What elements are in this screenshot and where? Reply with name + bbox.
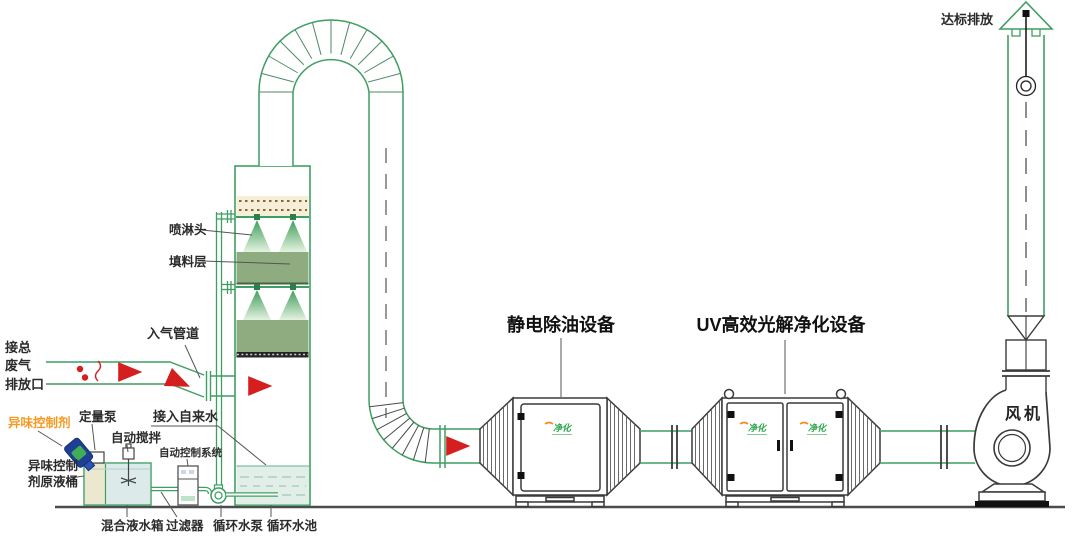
contaminant-marks	[77, 361, 101, 381]
uv-foot	[832, 502, 844, 507]
door-hinge	[518, 472, 525, 479]
fan-base	[979, 492, 1045, 501]
spray-nozzle	[254, 284, 260, 290]
uv-inlet-transition	[692, 398, 722, 495]
esp-door	[521, 404, 600, 491]
label-auto-stir: 自动搅拌	[111, 430, 162, 445]
spray-nozzle	[290, 214, 296, 220]
inlet-duct	[46, 362, 235, 401]
label-mixing-tank: 混合液水箱	[101, 518, 164, 533]
tank-right-section	[106, 464, 151, 504]
fan-base-pad	[975, 501, 1049, 507]
label-esp-unit: 静电除油设备	[507, 314, 616, 335]
label-tap-water: 接入自来水	[153, 409, 219, 424]
label-waste-inlet-2: 废气	[5, 358, 31, 373]
lifting-eye	[725, 390, 734, 399]
uv-foot	[726, 502, 738, 507]
esp-foot	[592, 502, 604, 507]
esp-foot	[516, 502, 528, 507]
fan-hub	[994, 430, 1030, 466]
sampling-port-inner	[1021, 81, 1031, 91]
door-hinge	[836, 474, 843, 481]
packing-layer-upper	[237, 252, 309, 283]
uv-door-right	[787, 403, 843, 491]
fan-label: 风机	[1005, 404, 1043, 423]
spray-nozzle	[254, 214, 260, 220]
door-hinge	[728, 474, 735, 481]
label-filter: 过滤器	[166, 518, 204, 533]
packing-support-grid	[237, 352, 309, 358]
door-logo-text: 净化	[808, 423, 828, 433]
label-spray-head: 喷淋头	[169, 222, 207, 237]
door-logo-text: 净化	[553, 423, 573, 433]
label-circ-pump: 循环水泵	[213, 518, 264, 533]
esp-unit	[480, 398, 640, 507]
circulation-pool-water	[237, 466, 310, 505]
label-packing-layer: 填料层	[169, 254, 207, 269]
label-circ-pool: 循环水池	[267, 518, 318, 533]
emission-arrow-head	[1023, 10, 1030, 17]
door-handle	[777, 440, 780, 451]
packing-layer-lower	[237, 320, 309, 352]
spray-nozzle	[290, 284, 296, 290]
door-hinge	[728, 411, 735, 418]
label-odor-tank-1: 异味控制	[28, 458, 78, 473]
label-auto-control: 自动控制系统	[159, 446, 222, 459]
uv-base-plate	[771, 498, 799, 502]
label-waste-inlet-1: 接总	[5, 340, 31, 355]
label-emission: 达标排放	[941, 12, 994, 27]
door-handle	[790, 440, 793, 451]
flex-connector	[1002, 316, 1050, 392]
label-odor-tank-2: 剂原液桶	[27, 474, 78, 489]
esp-inlet-transition	[480, 398, 513, 495]
control-cabinet	[178, 466, 198, 505]
spray-tower	[217, 166, 311, 505]
fan-pedestal	[982, 484, 1044, 492]
connecting-duct	[640, 425, 692, 469]
label-metering-pump: 定量泵	[78, 409, 117, 424]
esp-base-plate	[546, 498, 574, 502]
label-gas-inlet-pipe: 入气管道	[147, 326, 199, 341]
door-hinge	[518, 413, 525, 420]
fan-assembly: 风机	[974, 316, 1050, 507]
lifting-eye	[837, 390, 846, 399]
label-odor-agent: 异味控制剂	[8, 415, 71, 430]
process-flow-diagram: 净化 净化 净化	[0, 0, 1080, 543]
uv-door-left	[727, 403, 783, 491]
door-logo-text: 净化	[748, 423, 768, 433]
label-waste-inlet-3: 排放口	[5, 377, 44, 392]
label-uv-unit: UV高效光解净化设备	[696, 314, 866, 335]
stack-chimney	[1000, 2, 1052, 317]
door-hinge	[836, 411, 843, 418]
demister-band	[237, 196, 309, 216]
fan-inlet-duct	[880, 425, 975, 469]
esp-outlet-transition	[607, 398, 640, 495]
